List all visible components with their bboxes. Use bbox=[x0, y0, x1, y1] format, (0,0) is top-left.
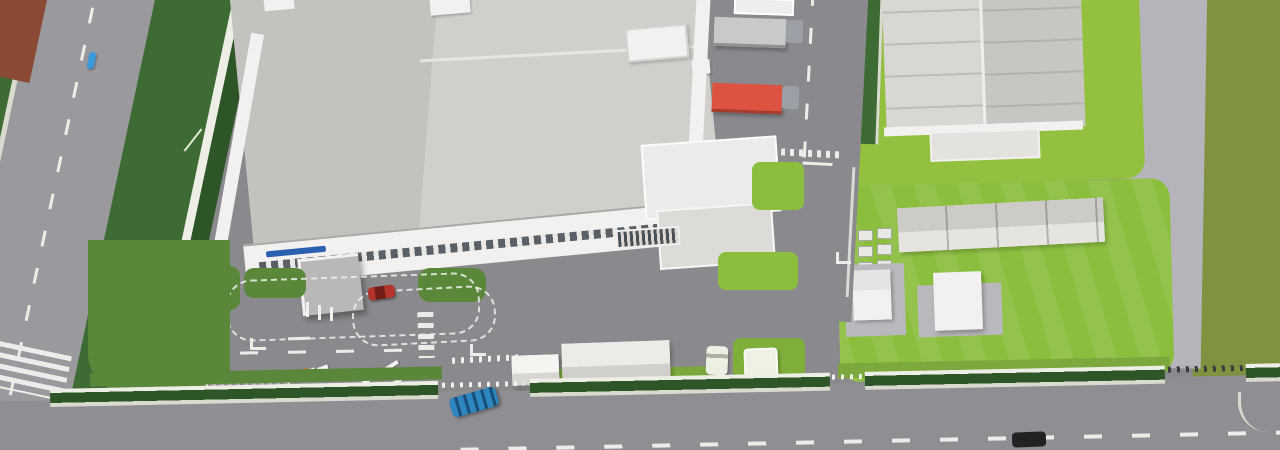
red-semi-trailer bbox=[712, 83, 783, 114]
dock-road-center-dashes bbox=[802, 0, 814, 165]
dock-canopy bbox=[734, 0, 795, 16]
utility-pad-2 bbox=[877, 228, 892, 239]
gate-posts-east1 bbox=[832, 374, 862, 380]
utility-cube-a bbox=[852, 269, 892, 320]
bottom-road-lane-dashes bbox=[460, 430, 1280, 450]
annex-lawn-lower bbox=[718, 252, 798, 290]
stop-mark-east bbox=[836, 252, 851, 264]
utility-pad-3 bbox=[858, 246, 873, 257]
white-van bbox=[706, 346, 729, 376]
dock-road-crossing bbox=[781, 148, 839, 158]
wall-segment-corner bbox=[1246, 363, 1280, 382]
utility-pad-1 bbox=[858, 230, 873, 241]
southwest-inner-lawn bbox=[88, 240, 230, 392]
gate-posts-main bbox=[442, 381, 524, 388]
gate-posts-east2 bbox=[1168, 365, 1244, 373]
gray-trailer-cab bbox=[786, 20, 804, 44]
gray-semi-trailer bbox=[714, 17, 787, 48]
black-car bbox=[1012, 431, 1047, 447]
scale-model-photo bbox=[0, 0, 1280, 450]
red-trailer-cab bbox=[782, 86, 800, 110]
warehouse-extension bbox=[930, 128, 1041, 162]
rooftop-unit-large bbox=[625, 23, 690, 62]
warehouse-roof-left-slope bbox=[881, 0, 986, 132]
stop-mark-mid bbox=[470, 344, 486, 356]
annex-lawn-upper bbox=[752, 162, 804, 210]
stop-mark-west bbox=[250, 338, 266, 350]
utility-pad-4 bbox=[877, 244, 892, 255]
utility-cube-b bbox=[933, 271, 983, 331]
dock-road-stop-line bbox=[802, 161, 832, 166]
warehouse-roof-right-slope bbox=[980, 0, 1085, 130]
